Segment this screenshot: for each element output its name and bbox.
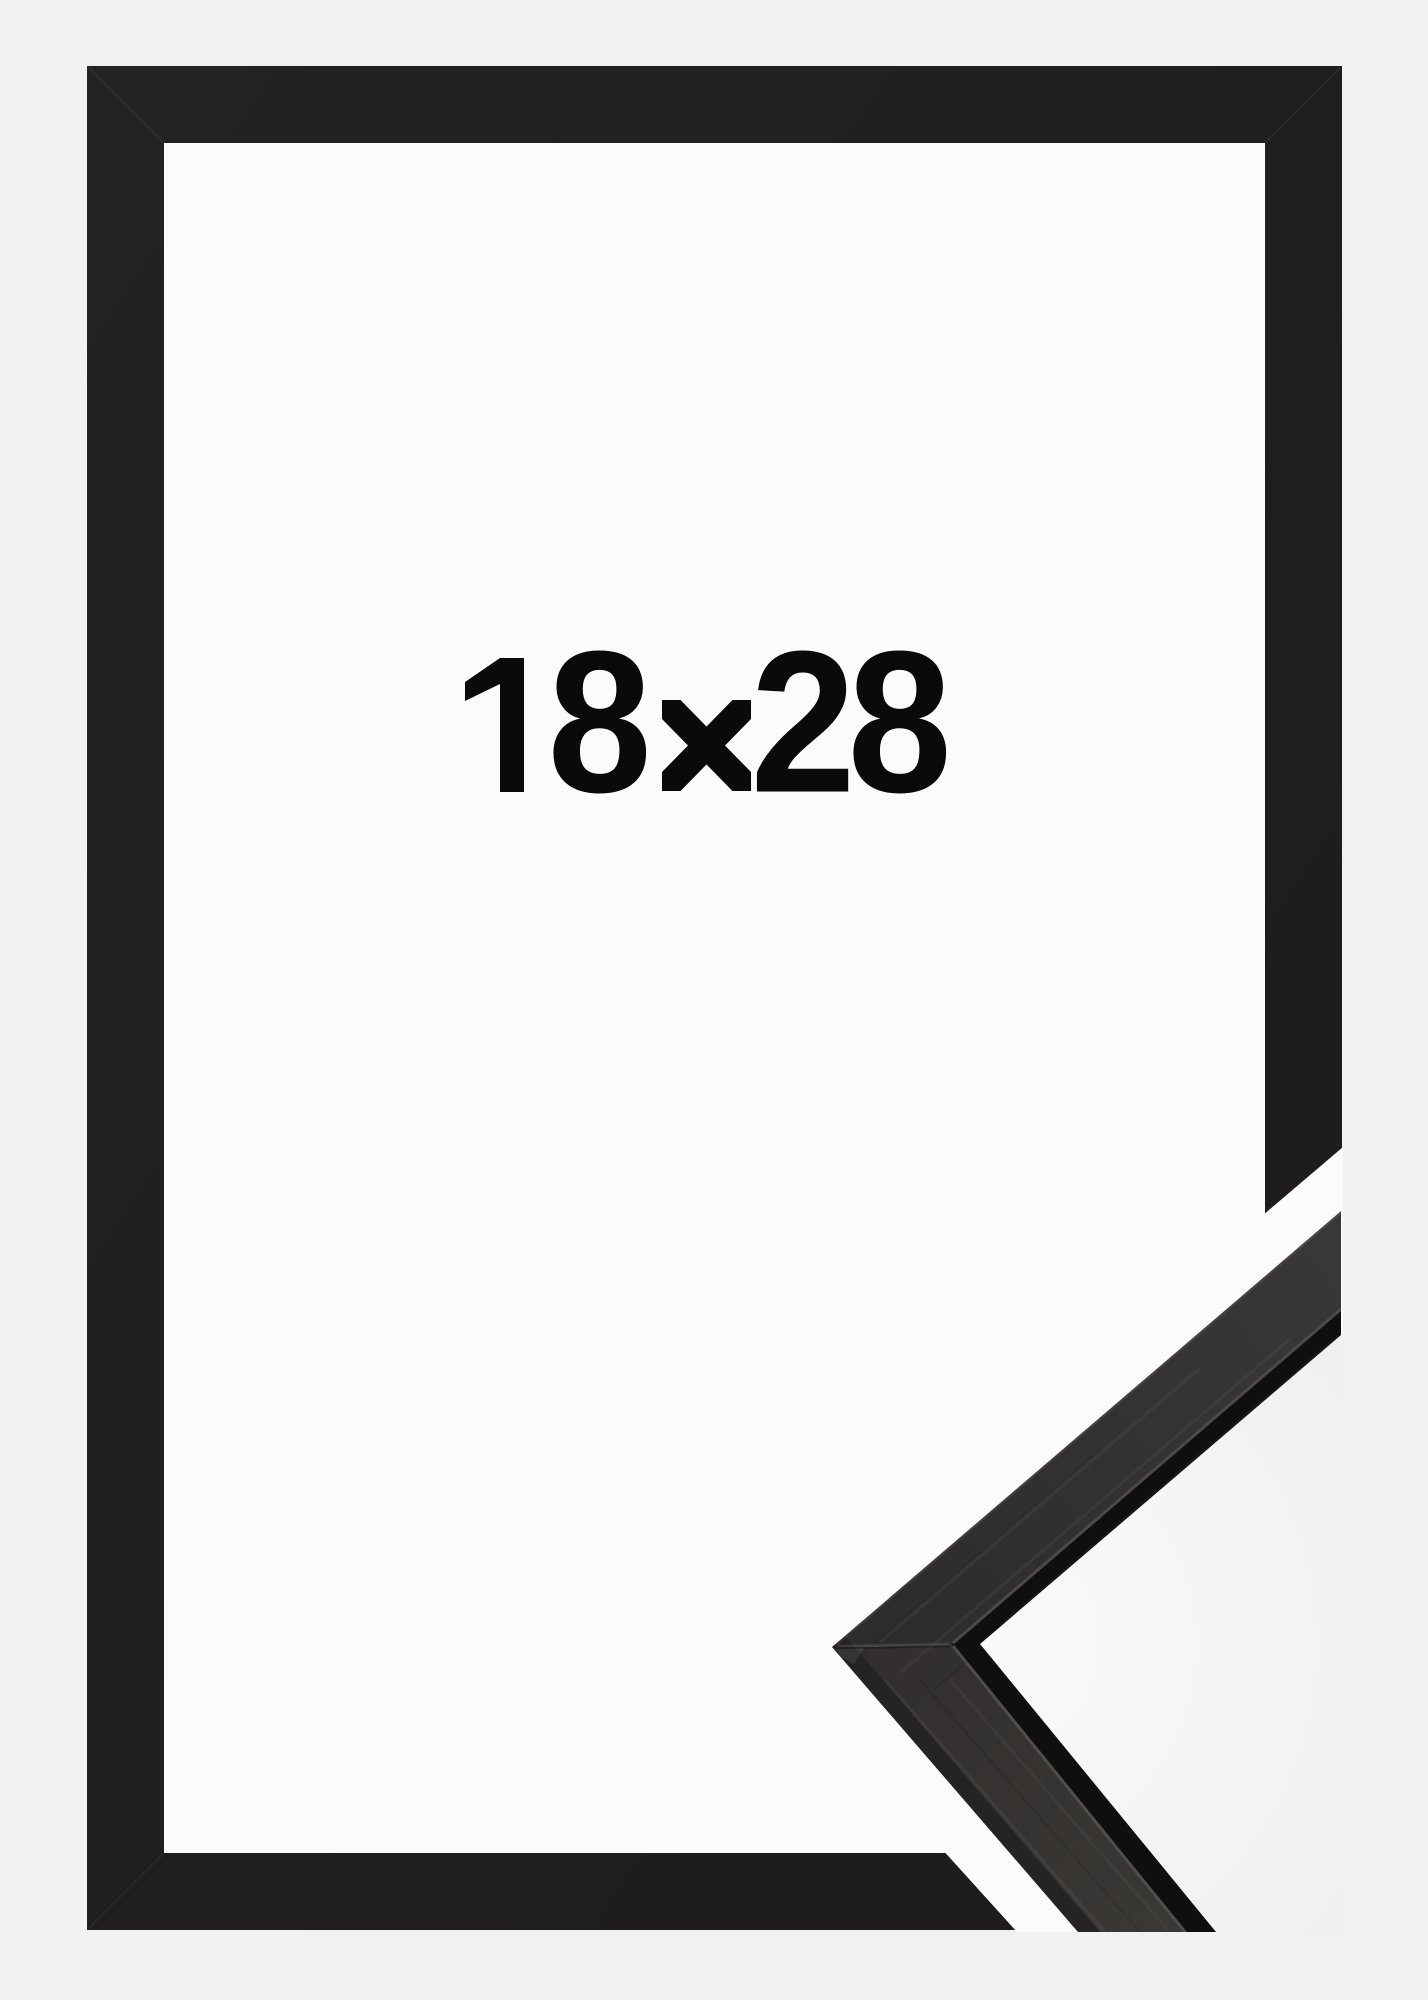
svg-text:2: 2 <box>750 610 855 835</box>
svg-text:8: 8 <box>548 610 652 835</box>
svg-text:8: 8 <box>848 610 952 835</box>
